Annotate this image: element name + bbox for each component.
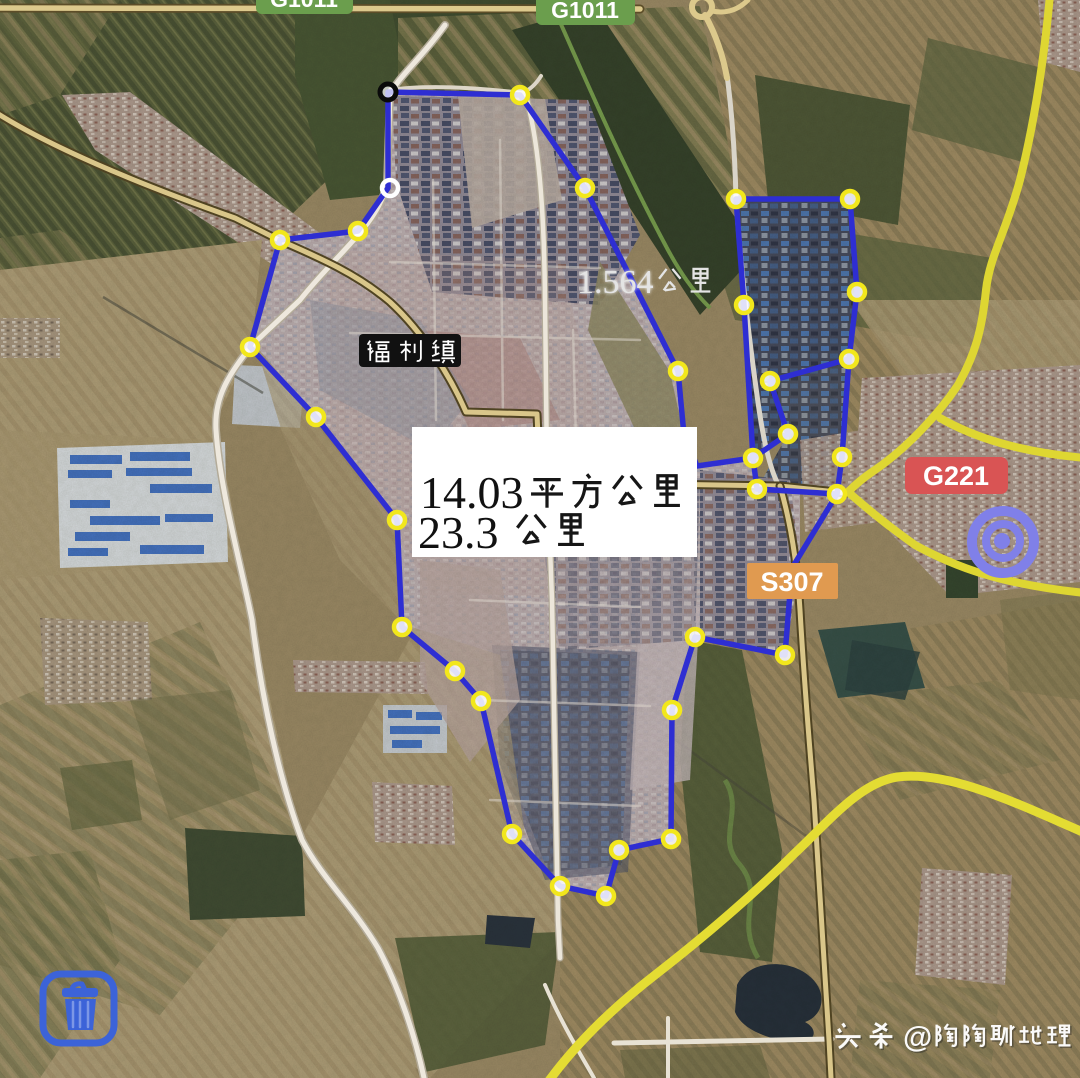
- svg-text:S307: S307: [760, 567, 823, 597]
- svg-text:G1011: G1011: [270, 0, 338, 12]
- svg-text:G1011: G1011: [551, 0, 619, 23]
- svg-text:@: @: [903, 1021, 932, 1054]
- svg-text:1.564: 1.564: [577, 264, 654, 301]
- svg-text:23.3: 23.3: [418, 507, 499, 558]
- svg-text:G221: G221: [923, 461, 989, 491]
